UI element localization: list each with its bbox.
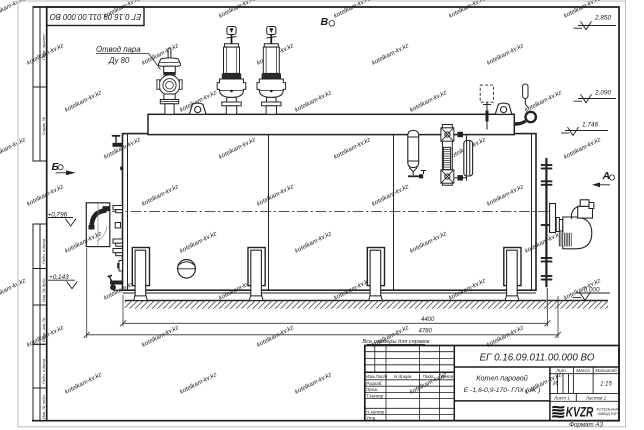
- svg-text:4400: 4400: [421, 317, 435, 323]
- svg-text:N докум.: N докум.: [394, 374, 413, 379]
- svg-text:Утв.: Утв.: [366, 416, 376, 421]
- svg-text:Инв. № подл.: Инв. № подл.: [41, 394, 46, 419]
- svg-text:Лист 1: Лист 1: [553, 395, 570, 400]
- svg-text:Т.контр: Т.контр: [366, 393, 384, 398]
- svg-text:КОТЕЛЬНЫЙ: КОТЕЛЬНЫЙ: [597, 408, 620, 412]
- svg-text:Перв. примен.: Перв. примен.: [41, 33, 46, 60]
- svg-text:Формат А3: Формат А3: [569, 422, 603, 429]
- svg-text:ЗАВОД РЗР: ЗАВОД РЗР: [598, 412, 619, 416]
- svg-text:Котел паровой: Котел паровой: [476, 373, 528, 382]
- svg-text:Подп. и дата: Подп. и дата: [41, 238, 46, 264]
- svg-text:+0,143: +0,143: [49, 274, 69, 281]
- svg-text:Разраб.: Разраб.: [366, 381, 383, 386]
- svg-text:Все размеры для справок: Все размеры для справок: [363, 339, 430, 345]
- svg-text:+0,796: +0,796: [48, 211, 68, 218]
- svg-text:Пров.: Пров.: [366, 387, 378, 392]
- svg-text:Инв. № дубл.: Инв. № дубл.: [41, 277, 46, 302]
- svg-text:Масштаб: Масштаб: [595, 368, 617, 373]
- svg-text:Подп.: Подп.: [423, 374, 435, 379]
- svg-text:Масса: Масса: [576, 368, 590, 373]
- svg-text:0,000: 0,000: [584, 286, 600, 293]
- svg-text:ЕГ 0.16.09.011.00.000 ВО: ЕГ 0.16.09.011.00.000 ВО: [50, 12, 142, 21]
- svg-text:1,746: 1,746: [582, 122, 598, 129]
- svg-text:Отвод пара: Отвод пара: [96, 45, 141, 54]
- svg-text:2,850: 2,850: [594, 15, 611, 22]
- svg-text:Изм.: Изм.: [366, 374, 376, 379]
- svg-text:ЕГ 0.16.09.011.00.000 ВО: ЕГ 0.16.09.011.00.000 ВО: [480, 352, 595, 363]
- svg-text:Е -1,6-0,9-170- ГЛХ ( Ж ): Е -1,6-0,9-170- ГЛХ ( Ж ): [464, 387, 541, 394]
- svg-text:Н.контр: Н.контр: [366, 409, 385, 414]
- svg-text:А: А: [602, 170, 611, 182]
- svg-text:KVZR: KVZR: [566, 405, 594, 420]
- svg-text:1:15: 1:15: [600, 382, 612, 388]
- svg-text:2,090: 2,090: [594, 90, 611, 97]
- svg-text:Взам. инв. №: Взам. инв. №: [41, 317, 46, 342]
- svg-text:Ду 80: Ду 80: [108, 56, 130, 65]
- svg-text:Дата: Дата: [440, 374, 454, 379]
- svg-text:Подп. и дата: Подп. и дата: [41, 358, 46, 384]
- svg-text:4780: 4780: [419, 328, 433, 334]
- svg-text:Листов 2: Листов 2: [585, 395, 607, 400]
- svg-text:Лист: Лист: [375, 374, 388, 379]
- svg-text:Справ. №: Справ. №: [41, 116, 46, 135]
- svg-text:И: И: [553, 380, 558, 387]
- svg-text:В: В: [321, 16, 329, 28]
- svg-text:Лит.: Лит.: [555, 368, 567, 373]
